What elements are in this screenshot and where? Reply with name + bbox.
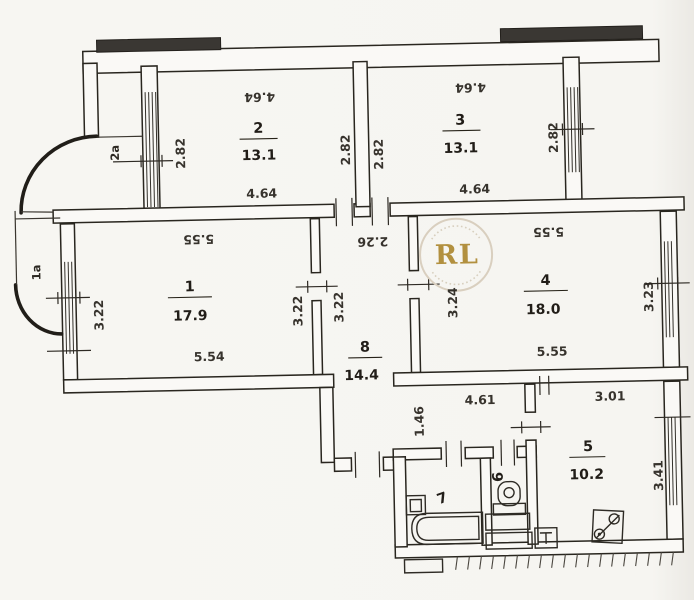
room1-number: 1: [184, 279, 194, 295]
room4-dim-bottom: 5.55: [537, 343, 568, 359]
stove-icon: [592, 510, 624, 543]
bathtub: [411, 512, 483, 544]
room3-number: 3: [455, 112, 465, 128]
room2-number: 2: [253, 121, 263, 137]
room8-dim-left: 3.22: [331, 292, 347, 323]
balcony-2a-label: 2а: [108, 145, 122, 161]
room1-dim-right: 3.22: [290, 295, 306, 326]
room1-dim-top: 5.55: [183, 232, 214, 248]
floor-plan: RL 4.64 2 13.1 4.64 2.82 2.82 4.64 3 13.…: [0, 0, 694, 600]
room2-dim-top: 4.64: [244, 89, 275, 105]
room8-number: 8: [360, 340, 370, 356]
room3-dim-top: 4.64: [455, 80, 486, 96]
room4-number: 4: [540, 273, 550, 289]
hall-dim-width: 1.46: [411, 406, 427, 437]
room8-area: 14.4: [344, 367, 379, 384]
room5-number: 5: [583, 439, 593, 455]
room8-dim-top: 2.26: [357, 234, 388, 250]
balcony-slab-left: [97, 38, 221, 53]
room2-area: 13.1: [242, 147, 277, 164]
room5-dim-top: 3.01: [594, 388, 625, 404]
room4-dim-right: 3.23: [641, 281, 657, 312]
room4-area: 18.0: [526, 302, 561, 319]
room7-number: 7: [435, 490, 450, 508]
room2-dim-left: 2.82: [173, 138, 189, 169]
bath-sink: [406, 495, 425, 514]
room2-dim-bottom: 4.64: [246, 185, 277, 201]
room5-area: 10.2: [569, 467, 604, 484]
balcony-slab-right: [500, 26, 642, 42]
room1-dim-left: 3.22: [91, 300, 107, 331]
exterior-walls: [56, 25, 683, 565]
room1-dim-bottom: 5.54: [194, 349, 225, 365]
fixtures: [406, 479, 624, 551]
room4-dim-top: 5.55: [533, 224, 564, 240]
room3-dim-left: 2.82: [371, 139, 387, 170]
room5-dim-right: 3.41: [650, 460, 666, 491]
balcony-2a: [20, 135, 145, 213]
room4-dim-left: 3.24: [445, 287, 461, 318]
watermark-logo: RL: [419, 218, 492, 291]
room1-area: 17.9: [173, 308, 208, 325]
room3-dim-bottom: 4.64: [459, 181, 490, 197]
watermark-text: RL: [435, 239, 480, 271]
room2-dim-right: 2.82: [338, 134, 354, 165]
balcony-1a-label: 1а: [29, 264, 43, 280]
entry-door: [355, 452, 356, 478]
toilet: [493, 481, 526, 515]
hall-dim-length: 4.61: [465, 392, 496, 408]
room3-dim-right: 2.82: [545, 122, 561, 153]
room6-number: 6: [491, 472, 507, 482]
room3-area: 13.1: [443, 140, 478, 157]
